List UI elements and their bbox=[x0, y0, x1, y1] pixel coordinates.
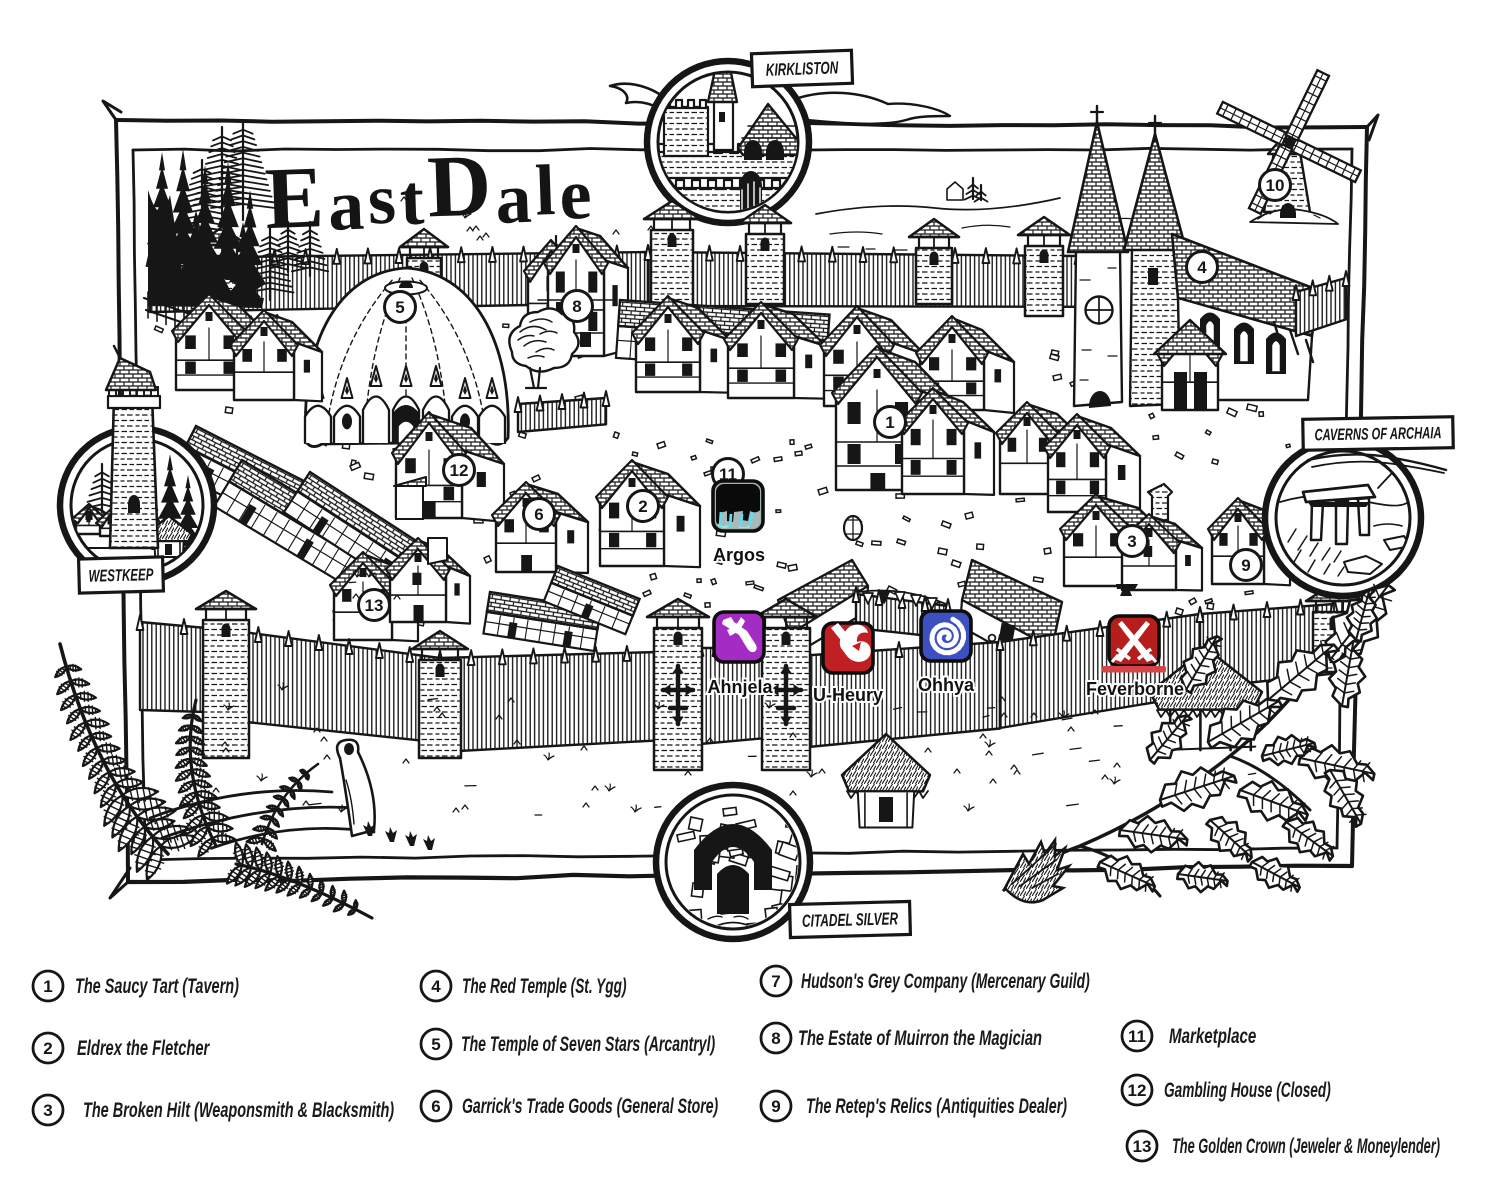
svg-text:The Broken Hilt (Weaponsmith &: The Broken Hilt (Weaponsmith & Blacksmit… bbox=[83, 1098, 394, 1121]
svg-text:9: 9 bbox=[1241, 556, 1250, 575]
svg-text:3: 3 bbox=[43, 1101, 52, 1120]
svg-text:The Saucy Tart (Tavern): The Saucy Tart (Tavern) bbox=[75, 974, 239, 997]
svg-text:KIRKLISTON: KIRKLISTON bbox=[765, 58, 839, 80]
svg-text:Ahnjela: Ahnjela bbox=[707, 677, 773, 697]
svg-text:U-Heury: U-Heury bbox=[813, 685, 883, 705]
svg-text:8: 8 bbox=[771, 1029, 780, 1048]
svg-text:12: 12 bbox=[450, 461, 469, 480]
svg-text:5: 5 bbox=[431, 1035, 440, 1054]
svg-text:Ohhya: Ohhya bbox=[918, 675, 975, 695]
svg-text:13: 13 bbox=[1133, 1137, 1152, 1156]
svg-text:Feverborne: Feverborne bbox=[1086, 679, 1184, 699]
svg-text:1: 1 bbox=[43, 977, 52, 996]
svg-text:2: 2 bbox=[638, 497, 647, 516]
svg-text:Hudson's Grey Company (Mercena: Hudson's Grey Company (Mercenary Guild) bbox=[801, 969, 1090, 993]
svg-text:9: 9 bbox=[771, 1097, 780, 1116]
svg-text:WESTKEEP: WESTKEEP bbox=[88, 566, 153, 586]
svg-text:4: 4 bbox=[431, 977, 441, 996]
svg-text:The Retep's Relics (Antiquitie: The Retep's Relics (Antiquities Dealer) bbox=[806, 1094, 1067, 1117]
svg-text:1: 1 bbox=[885, 413, 894, 432]
svg-text:6: 6 bbox=[534, 505, 543, 524]
svg-text:The Estate of Muirron the Magi: The Estate of Muirron the Magician bbox=[798, 1026, 1042, 1049]
svg-text:Eldrex the Fletcher: Eldrex the Fletcher bbox=[77, 1036, 210, 1059]
svg-text:3: 3 bbox=[1127, 532, 1136, 551]
svg-text:11: 11 bbox=[1128, 1027, 1146, 1046]
svg-text:The Red Temple (St. Ygg): The Red Temple (St. Ygg) bbox=[462, 974, 627, 998]
svg-text:Gambling House (Closed): Gambling House (Closed) bbox=[1164, 1078, 1331, 1102]
svg-text:8: 8 bbox=[572, 297, 581, 316]
svg-text:10: 10 bbox=[1266, 176, 1285, 195]
svg-text:5: 5 bbox=[395, 298, 404, 317]
svg-text:The Temple of Seven Stars (Arc: The Temple of Seven Stars (Arcantryl) bbox=[461, 1032, 715, 1055]
svg-text:CAVERNS OF ARCHAIA: CAVERNS OF ARCHAIA bbox=[1314, 423, 1441, 444]
svg-text:4: 4 bbox=[1197, 258, 1207, 277]
svg-text:Garrick's Trade Goods (General: Garrick's Trade Goods (General Store) bbox=[462, 1094, 718, 1117]
svg-text:The Golden Crown (Jeweler & Mo: The Golden Crown (Jeweler & Moneylender) bbox=[1172, 1134, 1440, 1158]
svg-text:2: 2 bbox=[43, 1039, 52, 1058]
svg-text:13: 13 bbox=[365, 596, 384, 615]
svg-text:6: 6 bbox=[431, 1097, 440, 1116]
svg-text:7: 7 bbox=[771, 972, 780, 991]
svg-text:12: 12 bbox=[1128, 1081, 1147, 1100]
svg-text:CITADEL SILVER: CITADEL SILVER bbox=[802, 909, 899, 931]
svg-text:Marketplace: Marketplace bbox=[1169, 1023, 1256, 1047]
svg-text:Argos: Argos bbox=[713, 545, 765, 565]
